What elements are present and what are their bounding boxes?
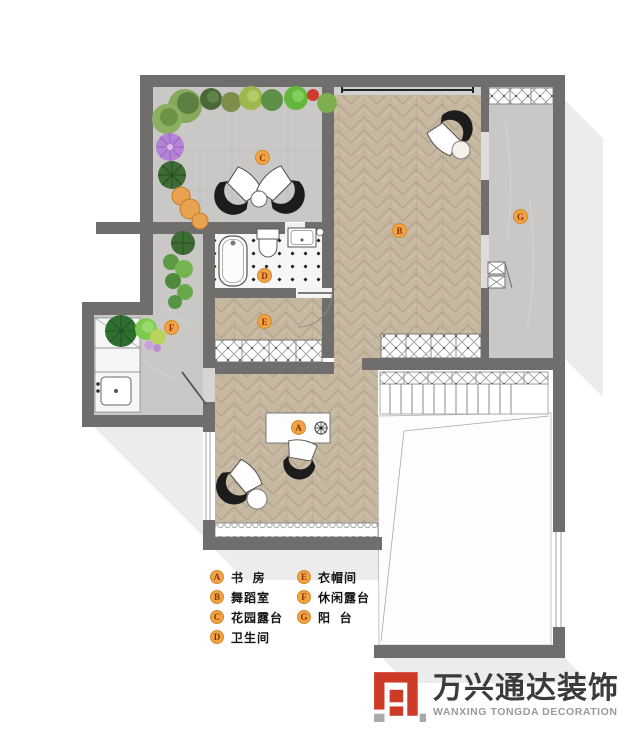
- legend: A 书 房 B 舞蹈室 C 花园露台 D 卫生间 E 衣帽间 F: [210, 570, 370, 644]
- legend-label-f: 休闲露台: [318, 589, 370, 606]
- wardrobe-e: [215, 340, 322, 362]
- legend-item-e: E 衣帽间: [297, 570, 370, 584]
- legend-column-2: E 衣帽间 F 休闲露台 G 阳 台: [297, 570, 370, 644]
- side-table: [251, 191, 267, 207]
- legend-badge-a: A: [210, 570, 224, 584]
- legend-label-d: 卫生间: [231, 629, 270, 646]
- legend-label-g: 阳 台: [318, 609, 353, 626]
- cabinet-strip: [380, 372, 548, 384]
- purple-flower: [156, 133, 184, 161]
- desk-fan-icon: [314, 421, 328, 435]
- legend-label-c: 花园露台: [231, 609, 283, 626]
- room-label-dance: B: [392, 223, 407, 238]
- logo-mark-icon: [372, 668, 426, 722]
- window-sill-a: [215, 523, 378, 537]
- legend-badge-f: F: [297, 590, 311, 604]
- room-label-study: A: [291, 420, 306, 435]
- wardrobe-b: [381, 334, 481, 358]
- legend-badge-b: B: [210, 590, 224, 604]
- bathtub-icon: [219, 236, 247, 286]
- legend-item-c: C 花园露台: [210, 610, 283, 624]
- legend-badge-d: D: [210, 630, 224, 644]
- legend-item-f: F 休闲露台: [297, 590, 370, 604]
- armchair-table: [247, 489, 267, 509]
- floor-plan-page: A B C D E F G A 书 房 B 舞蹈室 C 花园露台 D 卫生间: [0, 0, 640, 735]
- legend-badge-g: G: [297, 610, 311, 624]
- logo-chinese-name: 万兴通达装饰: [433, 672, 619, 706]
- room-label-garden: C: [255, 150, 270, 165]
- room-label-bath: D: [257, 268, 272, 283]
- void-area: [378, 413, 551, 645]
- room-label-balcony: G: [513, 209, 528, 224]
- logo-english-name: WANXING TONGDA DECORATION: [433, 706, 619, 719]
- window-study-left: [203, 432, 215, 520]
- legend-label-e: 衣帽间: [318, 569, 357, 586]
- room-label-cloak: E: [257, 314, 272, 329]
- legend-badge-e: E: [297, 570, 311, 584]
- legend-label-a: 书 房: [231, 569, 266, 586]
- company-logo: 万兴通达装饰 WANXING TONGDA DECORATION: [372, 668, 619, 722]
- balcony-cabinet: [489, 88, 553, 104]
- kitchen-sink-icon: [96, 377, 131, 405]
- legend-badge-c: C: [210, 610, 224, 624]
- legend-item-g: G 阳 台: [297, 610, 370, 624]
- stairs: [380, 384, 548, 414]
- logo-text: 万兴通达装饰 WANXING TONGDA DECORATION: [433, 672, 619, 719]
- legend-column-1: A 书 房 B 舞蹈室 C 花园露台 D 卫生间: [210, 570, 283, 644]
- legend-item-a: A 书 房: [210, 570, 283, 584]
- legend-label-b: 舞蹈室: [231, 589, 270, 606]
- room-label-leisure: F: [164, 320, 179, 335]
- window-right: [553, 532, 565, 627]
- legend-item-d: D 卫生间: [210, 630, 283, 644]
- dance-room-floor: [334, 87, 481, 358]
- toilet-icon: [257, 229, 279, 257]
- legend-item-b: B 舞蹈室: [210, 590, 283, 604]
